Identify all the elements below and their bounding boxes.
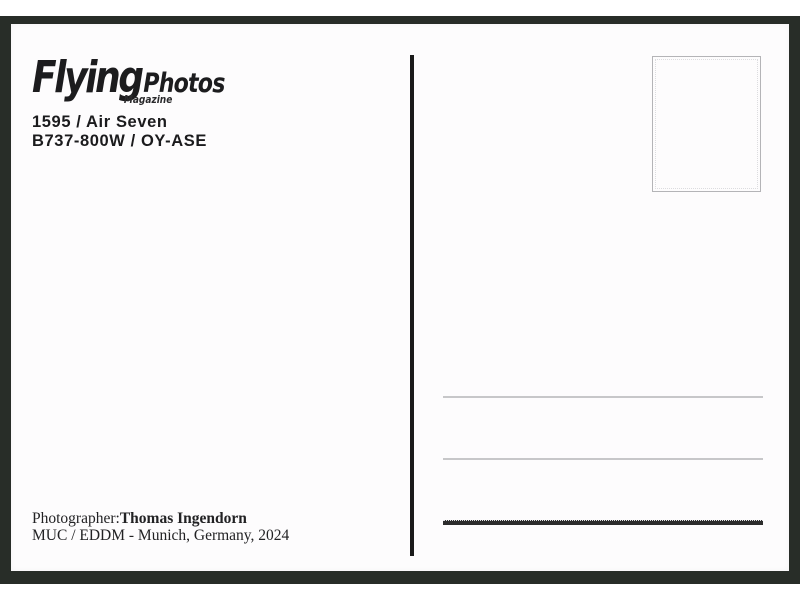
- photographer-credit: Photographer:Thomas Ingendorn MUC / EDDM…: [32, 511, 289, 544]
- photographer-name: Thomas Ingendorn: [120, 510, 247, 527]
- photographer-line: Photographer:Thomas Ingendorn: [32, 511, 289, 528]
- photo-info: 1595 / Air Seven B737-800W / OY-ASE: [32, 113, 207, 150]
- scanned-postcard-back: Flying Photos Magazine 1595 / Air Seven …: [0, 0, 800, 600]
- address-line-1: [443, 396, 763, 398]
- stamp-box: [652, 56, 761, 192]
- brand-tagline: Magazine: [124, 93, 172, 106]
- divider-line: [410, 55, 414, 556]
- address-line-3: [443, 520, 763, 525]
- aircraft-registration-line: B737-800W / OY-ASE: [32, 132, 207, 151]
- photographer-label: Photographer:: [32, 510, 120, 527]
- stamp-box-inner-border: [655, 59, 758, 189]
- brand-logo: Flying Photos Magazine: [32, 50, 225, 106]
- location-line: MUC / EDDM - Munich, Germany, 2024: [32, 528, 289, 545]
- address-line-2: [443, 458, 763, 460]
- postcard: Flying Photos Magazine 1595 / Air Seven …: [11, 24, 789, 571]
- photo-number-line: 1595 / Air Seven: [32, 113, 207, 132]
